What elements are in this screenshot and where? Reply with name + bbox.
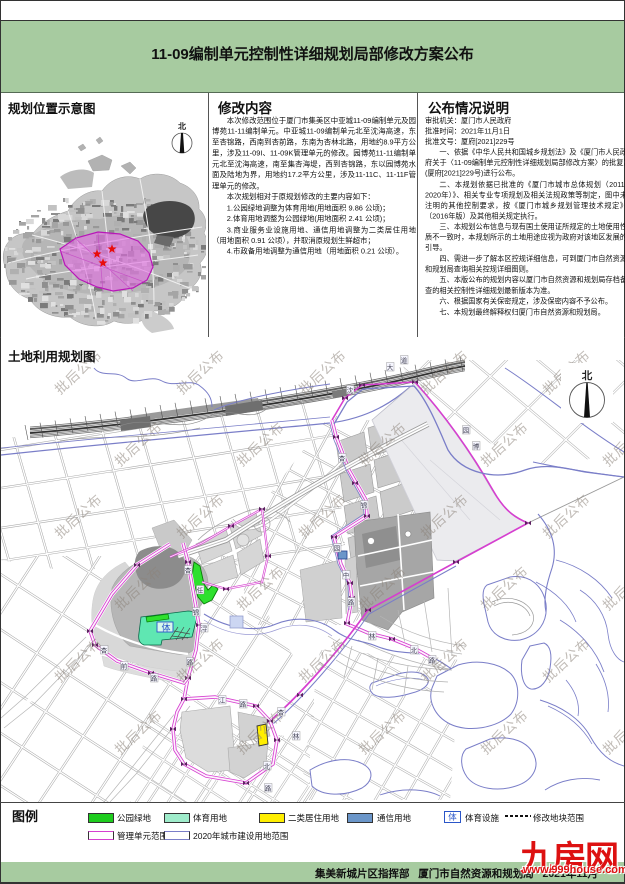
svg-text:北: 北 [178,121,186,131]
svg-text:林: 林 [293,732,300,741]
svg-text:路: 路 [151,674,158,683]
svg-text:杏: 杏 [339,454,346,463]
svg-text:前: 前 [121,662,128,671]
svg-text:北: 北 [411,647,418,655]
svg-text:园: 园 [463,427,469,435]
svg-text:北: 北 [582,369,593,382]
svg-text:体: 体 [161,622,170,633]
svg-text:江: 江 [219,697,226,705]
svg-text:园: 园 [334,545,340,553]
svg-text:中: 中 [343,571,349,580]
svg-text:路: 路 [348,598,355,607]
svg-text:道: 道 [401,356,408,365]
svg-text:沈: 沈 [347,386,354,395]
svg-text:博: 博 [473,442,480,451]
svg-text:路: 路 [265,784,272,793]
svg-text:林: 林 [369,632,376,641]
svg-text:路: 路 [240,700,247,709]
svg-text:锦: 锦 [361,501,367,510]
svg-text:浔: 浔 [201,625,208,633]
svg-text:任: 任 [197,586,204,595]
svg-text:大: 大 [387,363,394,372]
svg-text:杏: 杏 [185,566,192,575]
svg-text:锦: 锦 [193,608,199,617]
svg-text:北: 北 [264,763,271,771]
